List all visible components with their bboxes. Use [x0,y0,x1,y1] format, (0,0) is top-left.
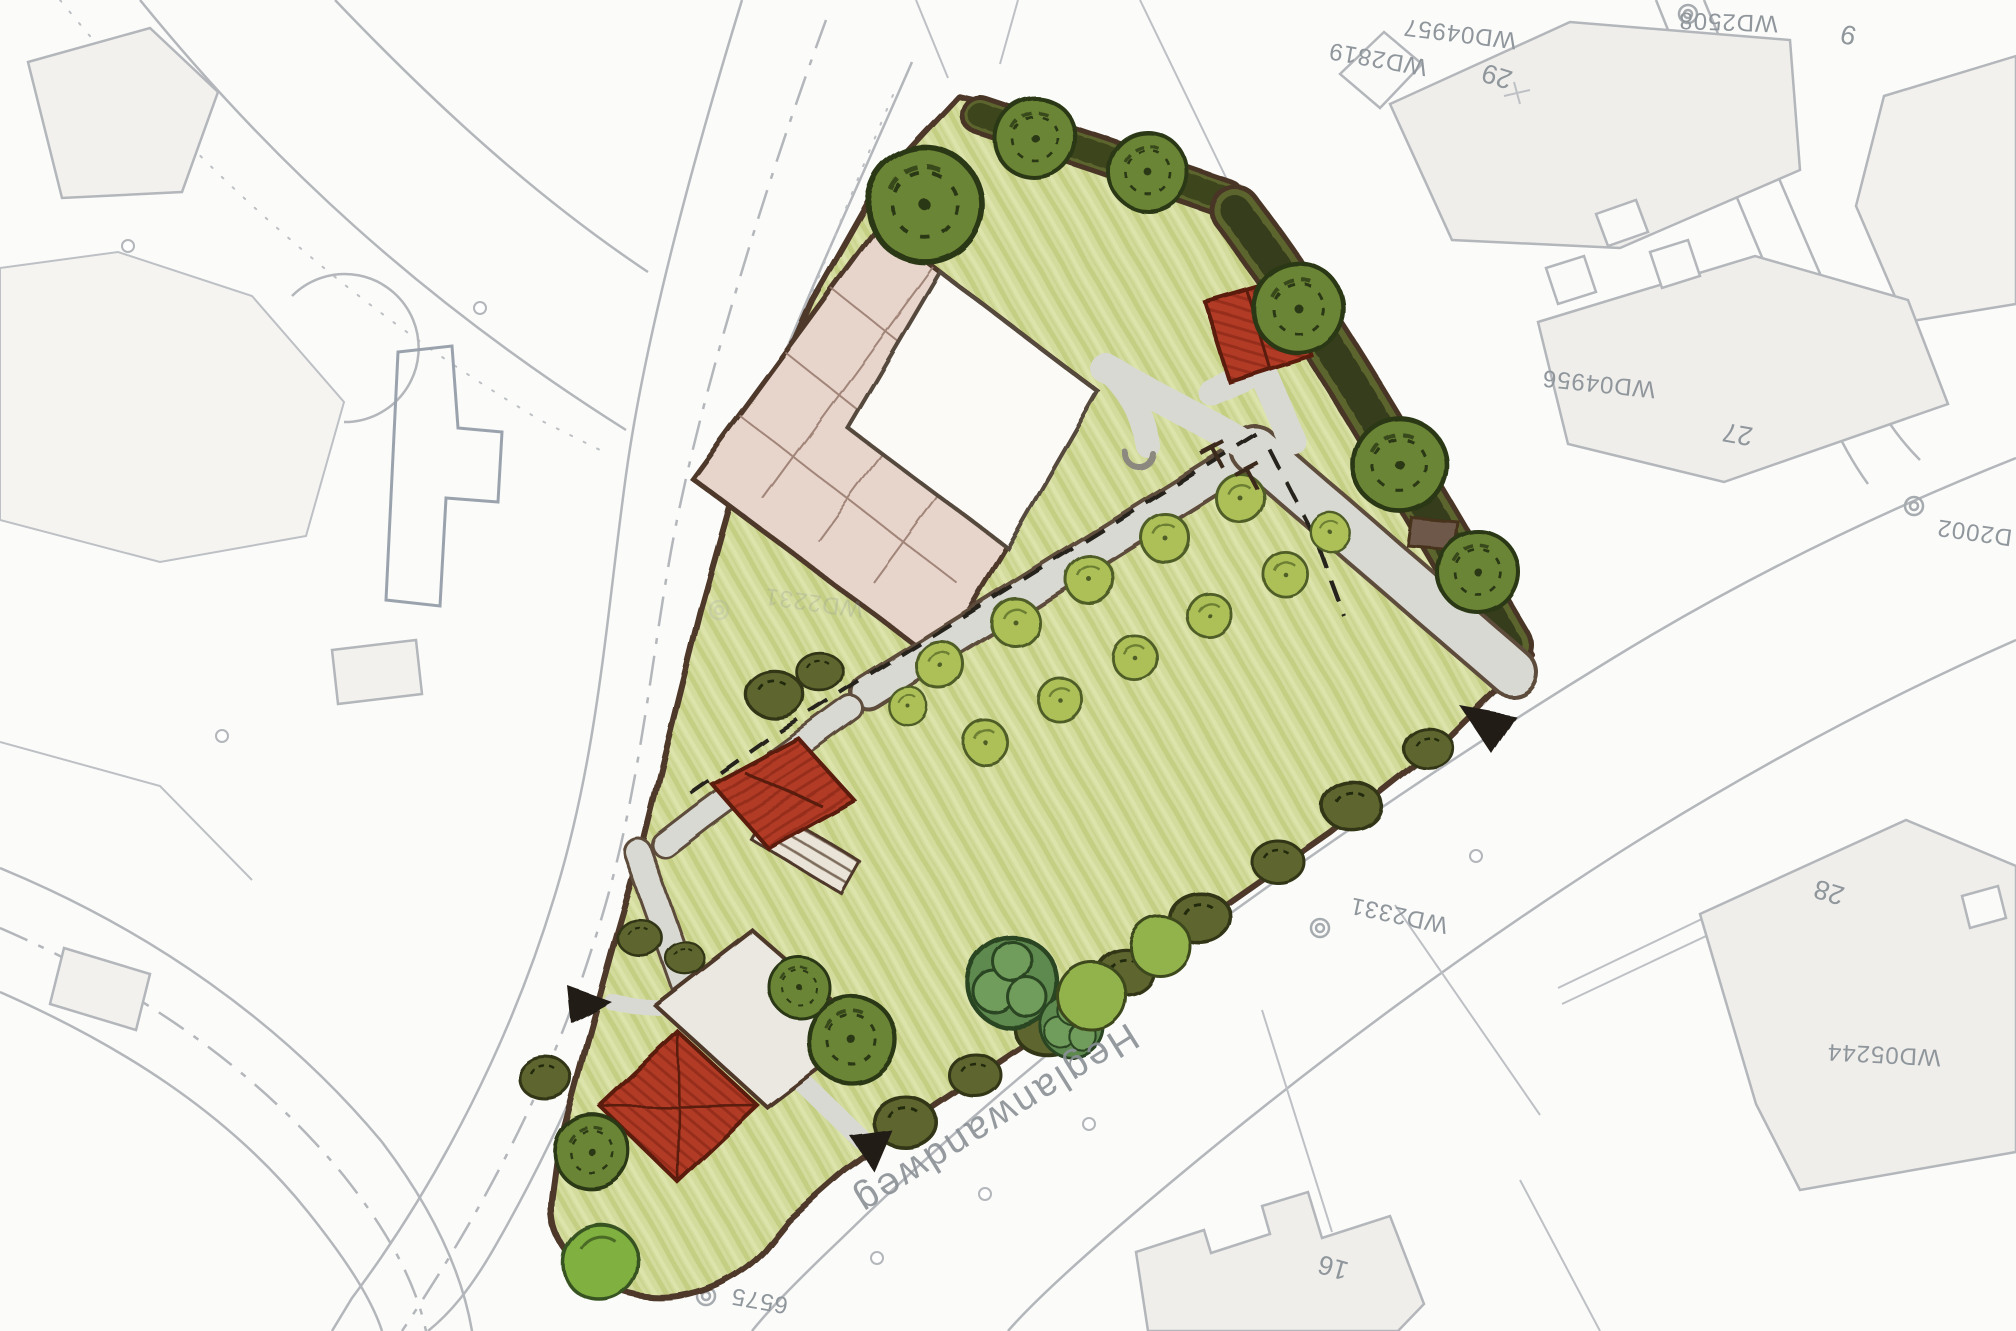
west-entrance-path [612,1002,658,1008]
house-number-27: 27 [1720,417,1755,452]
shrub [1322,782,1382,830]
tree [991,598,1039,646]
tree [1188,594,1232,638]
tree [995,98,1076,179]
tree [1354,419,1447,512]
shrub [666,942,705,974]
boundary-point [474,302,486,314]
tree [1038,678,1082,722]
tree [1263,552,1307,596]
tree [1438,532,1519,613]
parcel-label-wd2508: WD2508 [1678,7,1778,37]
shrub [1403,728,1452,768]
tree [1113,636,1157,680]
shrub [1130,916,1190,976]
boundary-point [1470,850,1482,862]
tree [1066,556,1114,604]
tree [1109,133,1187,211]
tree [868,148,982,262]
tree [916,641,964,689]
tree [1253,263,1343,353]
tree [889,687,927,725]
tree [963,720,1007,764]
building-footprint-small [332,640,422,704]
tree [1141,514,1189,562]
shrub [797,653,844,691]
boundary-point [979,1188,991,1200]
shrub [519,1057,571,1099]
tree [770,958,830,1018]
tree [1311,513,1349,551]
shrub [1252,841,1304,883]
shrub [746,672,803,718]
boundary-point [122,240,134,252]
scanned-site-plan-page: WD2508 WD2819 WD04957 29 9 WD04956 27 D2… [0,0,2016,1331]
tree [555,1115,630,1190]
boundary-point [216,730,228,742]
boundary-point [871,1252,883,1264]
boundary-point [1083,1118,1095,1130]
tree [1216,474,1264,522]
shrub [618,920,662,956]
shrub [949,1054,1001,1096]
